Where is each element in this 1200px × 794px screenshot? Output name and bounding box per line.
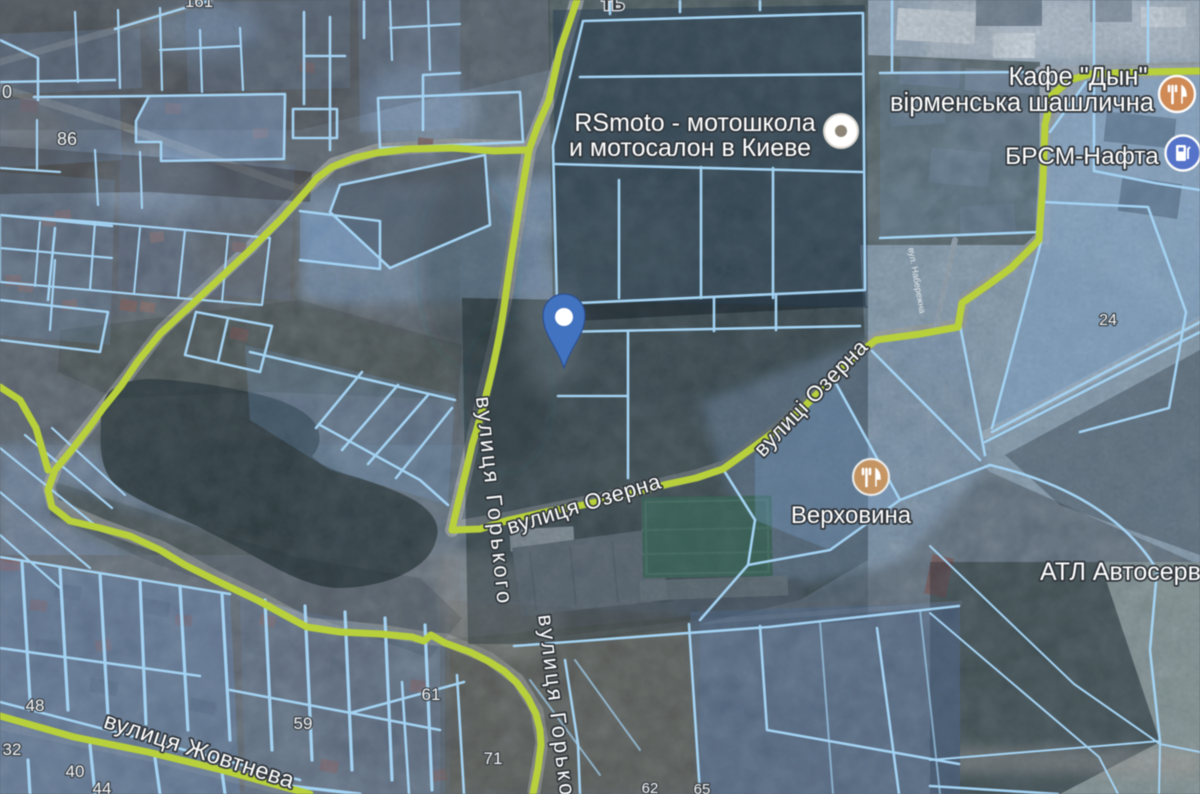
- svg-text:24: 24: [1099, 312, 1117, 329]
- svg-text:62: 62: [642, 780, 659, 794]
- svg-text:Кафе "Дын": Кафе "Дын": [1008, 63, 1147, 91]
- svg-text:и мотосалон в Киеве: и мотосалон в Киеве: [569, 134, 811, 162]
- svg-text:48: 48: [26, 696, 45, 715]
- svg-text:86: 86: [57, 129, 77, 149]
- svg-text:40: 40: [66, 762, 85, 781]
- svg-text:32: 32: [3, 740, 22, 759]
- svg-text:71: 71: [484, 749, 503, 768]
- svg-text:65: 65: [694, 781, 711, 794]
- svg-text:АТЛ Автосервис: АТЛ Автосервис: [1040, 558, 1200, 586]
- svg-text:161: 161: [185, 0, 213, 11]
- svg-text:0: 0: [2, 82, 12, 102]
- svg-text:ть: ть: [601, 0, 624, 15]
- svg-text:БРСМ-Нафта: БРСМ-Нафта: [1005, 143, 1159, 170]
- svg-text:Верховина: Верховина: [791, 502, 912, 529]
- svg-text:RSmoto - мотошкола: RSmoto - мотошкола: [574, 109, 815, 137]
- svg-text:вірменська шашлична: вірменська шашлична: [890, 89, 1155, 117]
- svg-text:59: 59: [294, 714, 313, 733]
- svg-text:61: 61: [422, 685, 441, 704]
- svg-text:44: 44: [93, 779, 112, 794]
